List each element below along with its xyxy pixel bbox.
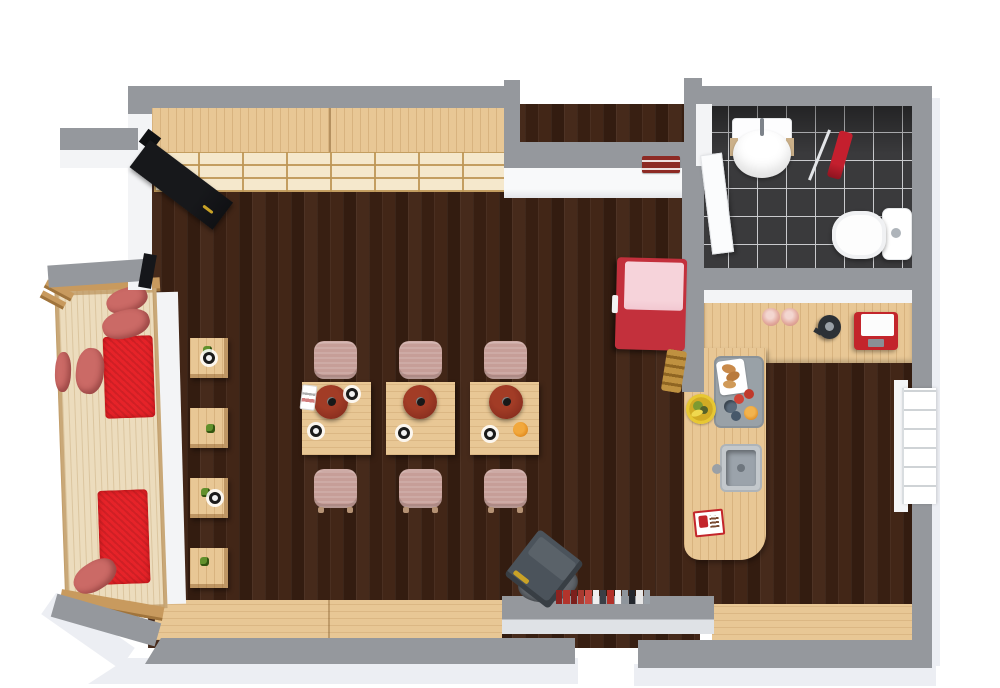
jam-jar-orange [744,406,758,420]
window-bench-left [150,600,502,640]
book-spine [607,590,613,604]
retro-fridge [615,257,687,351]
kettle [818,315,841,339]
sink-faucet-icon [760,118,764,136]
wall-top-bathroom [684,86,932,106]
lamp-fixture [327,397,336,406]
wall-bathroom-south [702,268,932,292]
back-door-window [902,388,936,504]
dining-chair [484,341,527,379]
book-spine [644,590,650,604]
sign-text-lines [709,515,719,528]
toilet [832,208,914,262]
wall-sign-red [642,156,680,173]
wall-porch-face [60,150,138,168]
dining-chair [314,469,357,508]
coffee-machine [854,312,898,350]
book-spine [578,590,584,604]
book-spine [556,590,562,604]
wall-left-corner [128,86,152,114]
menu-card [300,384,318,411]
window-bench-kitchen [712,604,914,642]
wall-right [912,86,932,666]
bowl [731,411,741,421]
fridge-lid [624,261,684,311]
dining-table-1 [302,382,371,455]
coffee-machine-top [861,314,894,336]
potted-plant-icon [206,424,215,433]
stove-handle-icon [513,570,530,585]
wall-entry-notch-left [504,80,520,148]
sink-drain-icon [737,464,745,472]
red-seat-cushion-1 [103,335,156,419]
coffee-machine-tray-icon [868,339,884,347]
book-spine [622,590,628,604]
book-spine [563,590,569,604]
wall-kitchen-north-face [704,290,912,303]
floor-plan-canvas [0,0,1000,688]
storage-canister [762,308,780,326]
toilet-bowl [832,211,886,259]
fridge-handle-icon [612,295,618,313]
dining-chair [399,469,442,508]
wall-bottom-kitchen [638,640,932,668]
red-cup [744,389,754,399]
toilet-flush-button-icon [891,228,901,238]
coffee-cup [398,427,410,439]
coffee-cup [484,428,496,440]
wall-top-main [128,86,520,108]
lamp-fixture [416,397,425,406]
coffee-cup [310,425,322,437]
sink-basin [733,130,791,178]
side-stool-4 [190,548,228,588]
coffee-cup [203,352,215,364]
sign-graphic-red [698,515,708,528]
dining-chair [314,341,357,379]
dining-table-2 [386,382,455,455]
coffee-cup [209,492,221,504]
kitchen-faucet-icon [712,464,722,474]
potted-plant-icon [200,557,209,566]
kettle-lid-icon [825,322,834,331]
book-spine [636,590,642,604]
breakfast-tray [714,356,764,428]
book-spine [600,590,606,604]
kitchen-sink [720,444,762,492]
croissant-icon [723,380,736,388]
lamp-fixture [502,397,511,406]
door-handle-icon [202,204,213,214]
book-spine [571,590,577,604]
dining-chair [399,341,442,379]
banana-icon [690,408,703,418]
wall-bottom-main [145,638,575,664]
book-spine [629,590,635,604]
dining-chair [484,469,527,508]
shelf-seam [329,106,331,152]
book-spine [615,590,621,604]
bench-left-seam [328,600,330,640]
coffee-cup [346,388,358,400]
dining-table-3 [470,382,539,455]
book-spine [585,590,591,604]
book-spine [593,590,599,604]
fruit-plate [686,394,716,424]
orange-juice-glass [513,422,528,437]
bathroom-sink [732,116,792,180]
croissant-plate [716,358,748,396]
wall-porch-left [60,128,138,150]
storage-canister [781,308,799,326]
books-row [556,590,650,604]
counter-sign-card [693,509,726,538]
